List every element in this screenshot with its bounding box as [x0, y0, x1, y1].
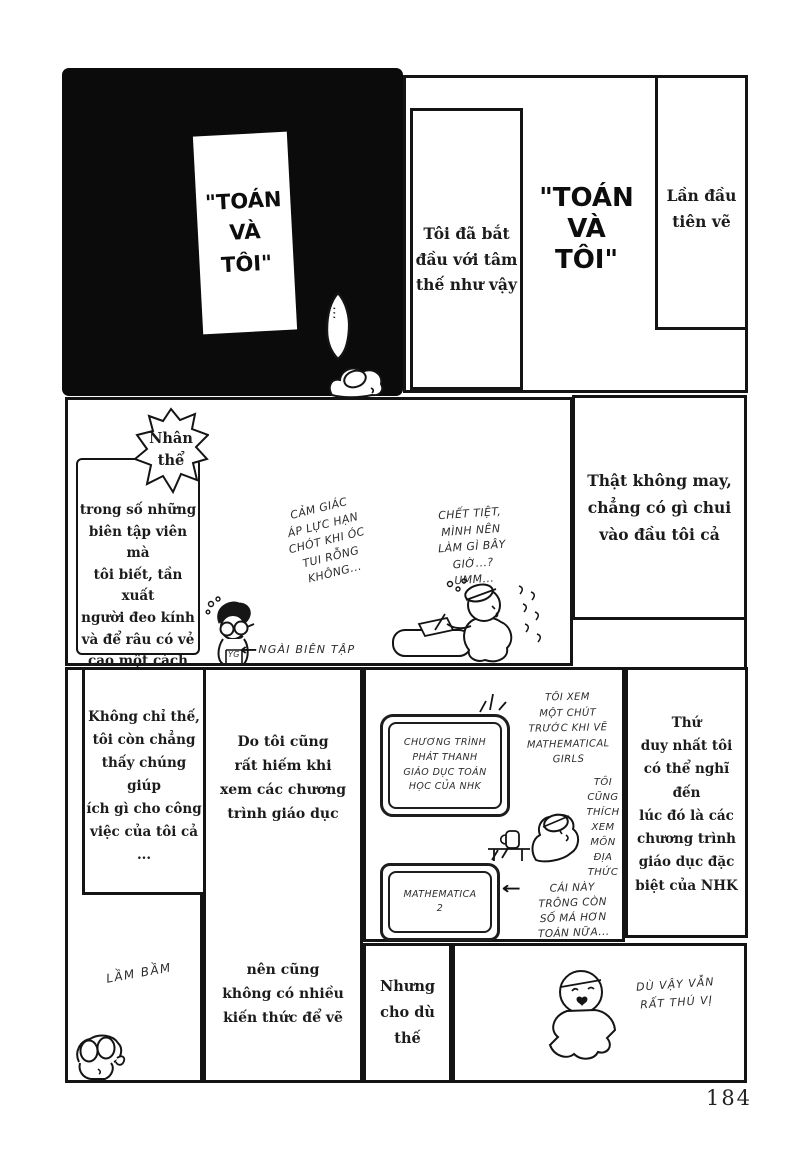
caption-first-time: Lần đầu tiên vẽ [658, 183, 745, 236]
tv-nhk-text: CHƯƠNG TRÌNH PHÁT THANH GIÁO DỤC TOÁN HỌ… [403, 736, 486, 795]
series-title: "TOÁN VÀ TÔI" [524, 183, 649, 277]
tv-mathematica-screen: MATHEMATICA 2 [388, 871, 492, 933]
book-sign: "TOÁN VÀ TÔI" [193, 132, 297, 335]
editor-label: NGÀI BIÊN TẬP [258, 643, 355, 656]
spark-lines-top [476, 688, 510, 716]
caption-box-mindset: Tôi đã bắt đầu với tâm thế như vậy [410, 108, 523, 390]
note-watch-before: TÔI XEM MỘT CHÚT TRƯỚC KHI VẼ MATHEMATIC… [511, 689, 624, 768]
ellipsis-dots: ... [329, 307, 344, 321]
left-arrow-icon: ← [240, 640, 257, 659]
panel-no-ideas: Thật không may, chẳng có gì chui vào đầu… [572, 395, 747, 620]
panel-rarely-watch: Do tôi cũng rất hiếm khi xem các chương … [203, 667, 363, 1083]
speech-drop-bubble [322, 290, 354, 362]
manga-page: "TOÁN VÀ TÔI" ... Tôi đã bắt đầu với tâm… [0, 0, 800, 1161]
note-more-numbers: CÁI NÀY TRÔNG CÒN SỐ MÁ HƠN TOÁN NỮA... [522, 879, 624, 942]
note-still-fun: DÙ VẬY VẪN RẤT THÚ VỊ [620, 972, 732, 1016]
caption-but-even-so: Nhưng cho dù thế [380, 974, 435, 1051]
burst-text: Nhân thể [133, 428, 209, 472]
note-also-like: TÔI CŨNG THÍCH XEM MÔN ĐỊA THỨC [580, 775, 626, 880]
panel-only-thing: Thứ duy nhất tôi có thể nghĩ đến lúc đó … [625, 667, 748, 938]
caption-box-not-helpful: Không chỉ thế, tôi còn chẳng thấy chúng … [82, 667, 206, 895]
character-muttering [73, 1032, 127, 1080]
panel-still-fun: DÙ VẬY VẪN RẤT THÚ VỊ [452, 943, 747, 1083]
tv-nhk-screen: CHƯƠNG TRÌNH PHÁT THANH GIÁO DỤC TOÁN HỌ… [388, 722, 502, 809]
editor-pointer: ← NGÀI BIÊN TẬP [242, 640, 355, 659]
caption-not-helpful: Không chỉ thế, tôi còn chẳng thấy chúng … [85, 706, 203, 867]
panel-title-row: Tôi đã bắt đầu với tâm thế như vậy "TOÁN… [403, 75, 748, 393]
spark-lines-bottom [488, 842, 514, 864]
tv-mathematica: MATHEMATICA 2 [380, 863, 500, 941]
editor-signature: YG [228, 650, 240, 659]
caption-no-ideas: Thật không may, chẳng có gì chui vào đầu… [587, 467, 732, 548]
book-sign-title: "TOÁN VÀ TÔI" [204, 184, 285, 282]
panel-mutter-column: Không chỉ thế, tôi còn chẳng thấy chúng … [65, 667, 203, 1083]
caption-box-first-time: Lần đầu tiên vẽ [655, 75, 748, 330]
note-mutter: LẦM BẦM [95, 959, 182, 988]
panel-tv: CHƯƠNG TRÌNH PHÁT THANH GIÁO DỤC TOÁN HỌ… [363, 667, 625, 942]
page-number: 184 [700, 1086, 758, 1110]
panel-editors: trong số những biên tập viên mà tôi biết… [65, 397, 573, 666]
caption-only-thing: Thứ duy nhất tôi có thể nghĩ đến lúc đó … [628, 712, 745, 898]
caption-mindset: Tôi đã bắt đầu với tâm thế như vậy [413, 221, 520, 298]
tv-nhk: CHƯƠNG TRÌNH PHÁT THANH GIÁO DỤC TOÁN HỌ… [380, 714, 510, 817]
panel-but-even-so: Nhưng cho dù thế [363, 943, 452, 1083]
left-arrow-icon: ← [502, 879, 521, 899]
caption-rarely-watch: Do tôi cũng rất hiếm khi xem các chương … [206, 730, 360, 826]
note-pressure: CẢM GIÁC ÁP LỰC HẠN CHÓT KHI ÓC TUI RỖNG… [263, 488, 392, 595]
tv-mathematica-text: MATHEMATICA 2 [403, 888, 476, 917]
caption-little-knowledge: nên cũng không có nhiều kiến thức để vẽ [206, 958, 360, 1030]
character-at-desk [387, 578, 549, 666]
character-happy [537, 964, 629, 1066]
character-peeking [324, 357, 390, 397]
border-connector [744, 615, 747, 670]
caption-editors: trong số những biên tập viên mà tôi biết… [78, 500, 198, 694]
panel-dark-intro: "TOÁN VÀ TÔI" ... [62, 68, 403, 396]
